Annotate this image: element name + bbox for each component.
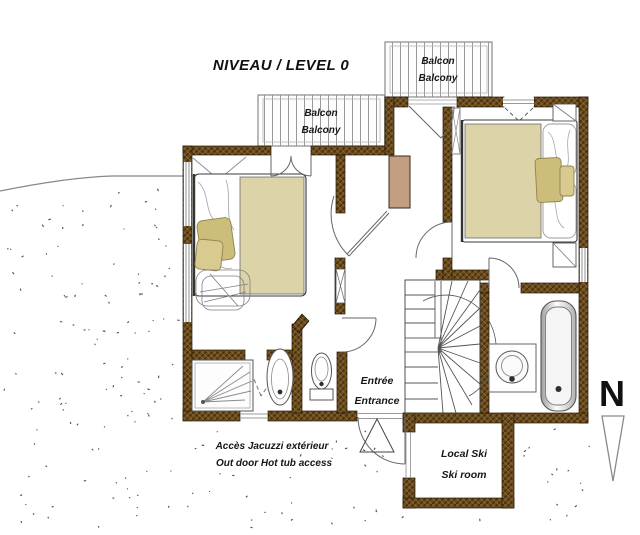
french-door-leaf-left (271, 155, 291, 176)
entrance-label-en: Entrance (355, 395, 400, 407)
page-title: NIVEAU / LEVEL 0 (213, 57, 349, 74)
shower-drain (201, 400, 205, 404)
bed-right (452, 104, 577, 267)
jacuzzi-label-en: Out door Hot tub access (216, 458, 333, 469)
window-left-2 (184, 244, 191, 322)
jacuzzi-door-threshold (240, 414, 268, 418)
entrance-direction-triangle (360, 419, 394, 452)
entrance-door (358, 417, 405, 464)
balcony-left-label-fr: Balcon (304, 108, 337, 119)
balcony-right: Balcon Balcony (385, 42, 492, 97)
toilet-tank (310, 389, 333, 400)
balcony-right-label-fr: Balcon (421, 56, 454, 67)
balcony-door-threshold (408, 100, 457, 104)
shower (192, 360, 253, 411)
north-arrow-icon (602, 416, 624, 481)
tub-drain (556, 386, 562, 392)
compass: N (599, 373, 625, 481)
entrance-label-fr: Entrée (361, 375, 394, 387)
basin-drain (509, 376, 515, 382)
floor-plan-svg: Balcon Balcony Balcon Balcony (0, 0, 640, 535)
blanket-left (240, 177, 304, 294)
bathtub (541, 301, 576, 411)
toilet (310, 353, 333, 400)
bathroom-door (489, 258, 519, 288)
pillow-left-2 (195, 239, 224, 272)
ski-room-label-fr: Local Ski (441, 448, 488, 460)
entrance-threshold (357, 414, 403, 419)
window-top (503, 98, 534, 107)
cushion-right-2 (560, 166, 574, 196)
wc-door (342, 318, 376, 352)
bed-left (194, 174, 306, 310)
window-left-1 (184, 162, 191, 226)
balcony-right-label-en: Balcony (419, 73, 458, 84)
jacuzzi-label-fr: Accès Jacuzzi extérieur (215, 441, 330, 452)
balcony-left-label-en: Balcony (302, 125, 341, 136)
floor-plan: Balcon Balcony Balcon Balcony (0, 0, 640, 535)
bathroom-right (489, 301, 576, 411)
pedestal-basin (267, 349, 293, 405)
blanket-right (465, 124, 541, 238)
french-door-leaf-right (291, 155, 311, 176)
window-swing-dashes (505, 108, 533, 121)
ski-room-door (406, 432, 411, 478)
terrain-contour-line (0, 176, 183, 191)
cushion-right-1 (535, 157, 563, 202)
chimney-block (389, 156, 410, 208)
window-right (580, 248, 587, 282)
bedroom-right-door (416, 222, 452, 258)
balcony-left: Balcon Balcony (258, 95, 385, 146)
north-letter: N (599, 373, 625, 414)
ski-room-label-en: Ski room (442, 469, 487, 481)
